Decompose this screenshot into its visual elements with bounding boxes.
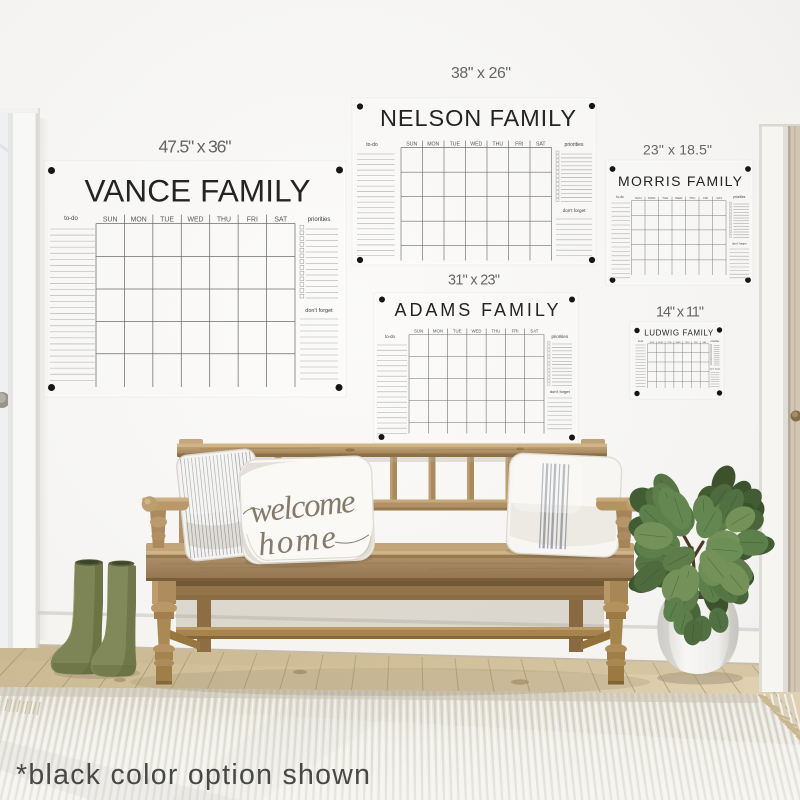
svg-text:TUE: TUE <box>450 142 461 148</box>
svg-text:don't forget: don't forget <box>305 308 333 314</box>
svg-text:to-do: to-do <box>366 142 378 148</box>
svg-text:47.5" x 36": 47.5" x 36" <box>159 137 232 157</box>
svg-text:TUE: TUE <box>453 329 462 334</box>
svg-text:SAT: SAT <box>536 142 547 148</box>
svg-text:THU: THU <box>492 142 503 148</box>
svg-text:TUE: TUE <box>160 217 174 224</box>
svg-text:FRI: FRI <box>515 142 523 148</box>
svg-text:SAT: SAT <box>703 341 708 344</box>
svg-text:ADAMS FAMILY: ADAMS FAMILY <box>395 300 559 320</box>
svg-text:WED: WED <box>675 196 683 200</box>
svg-text:MON: MON <box>131 217 147 224</box>
svg-text:don't forget: don't forget <box>550 389 571 394</box>
svg-text:don't forget: don't forget <box>710 368 721 371</box>
svg-text:THU: THU <box>217 217 231 224</box>
svg-text:to-do: to-do <box>64 216 78 222</box>
svg-text:don't forget: don't forget <box>563 208 587 213</box>
svg-text:NELSON FAMILY: NELSON FAMILY <box>380 105 576 131</box>
svg-text:MON: MON <box>658 342 664 344</box>
svg-text:FRI: FRI <box>247 217 258 224</box>
svg-text:SUN: SUN <box>103 217 118 224</box>
svg-text:WED: WED <box>470 142 482 148</box>
svg-text:23" x 18.5": 23" x 18.5" <box>643 142 712 158</box>
svg-text:MON: MON <box>433 329 443 334</box>
svg-text:priorities: priorities <box>551 334 568 339</box>
svg-text:THU: THU <box>689 196 695 200</box>
svg-text:MON: MON <box>427 142 439 148</box>
svg-text:priorities: priorities <box>565 142 584 148</box>
svg-text:priorities: priorities <box>733 195 745 199</box>
svg-text:to-do: to-do <box>616 195 623 199</box>
svg-text:LUDWIG FAMILY: LUDWIG FAMILY <box>644 329 714 338</box>
svg-text:MORRIS FAMILY: MORRIS FAMILY <box>618 173 743 189</box>
svg-text:priorities: priorities <box>711 340 721 343</box>
svg-text:SAT: SAT <box>274 217 288 224</box>
svg-text:SUN: SUN <box>414 329 423 334</box>
svg-text:FRI: FRI <box>703 196 708 200</box>
svg-text:THU: THU <box>685 342 690 344</box>
svg-text:31" x 23": 31" x 23" <box>448 273 500 289</box>
svg-text:FRI: FRI <box>512 329 519 334</box>
svg-text:SUN: SUN <box>650 342 655 344</box>
svg-text:MON: MON <box>648 196 655 200</box>
svg-text:SUN: SUN <box>635 196 642 200</box>
svg-text:SUN: SUN <box>406 142 417 148</box>
svg-text:FRI: FRI <box>694 342 698 344</box>
svg-text:priorities: priorities <box>308 217 331 223</box>
svg-text:WED: WED <box>676 342 682 344</box>
svg-text:don't forget: don't forget <box>732 242 747 246</box>
svg-text:SAT: SAT <box>530 329 538 334</box>
svg-text:WED: WED <box>187 217 203 224</box>
svg-text:38" x 26": 38" x 26" <box>451 65 511 82</box>
svg-text:14" x 11": 14" x 11" <box>656 305 704 321</box>
svg-text:VANCE FAMILY: VANCE FAMILY <box>85 173 311 209</box>
svg-text:TUE: TUE <box>662 196 668 200</box>
svg-text:TUE: TUE <box>667 342 672 344</box>
svg-text:WED: WED <box>471 329 481 334</box>
svg-text:to-do: to-do <box>638 340 644 343</box>
svg-text:to-do: to-do <box>385 334 396 339</box>
svg-text:SAT: SAT <box>716 196 722 200</box>
svg-text:THU: THU <box>491 329 500 334</box>
